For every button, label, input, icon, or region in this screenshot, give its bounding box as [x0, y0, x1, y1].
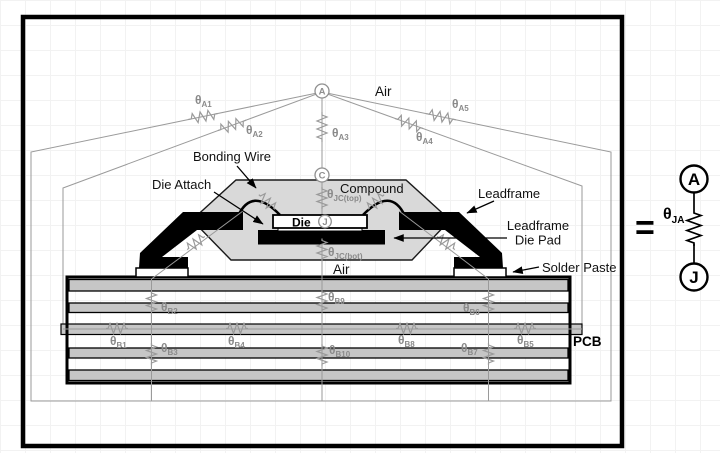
theta-a2: θA2: [246, 123, 263, 139]
resistor-a1: [187, 109, 218, 125]
theta-b10: θB10: [329, 343, 351, 359]
air-gap-label: Air: [333, 262, 350, 277]
resistor-a5: [425, 109, 456, 125]
leadframe-die-pad-label-2: Die Pad: [515, 233, 561, 248]
resistor-ja: [687, 210, 701, 246]
node-a-label: A: [319, 87, 326, 98]
pcb-label: PCB: [573, 334, 602, 349]
theta-b7: θB7: [461, 341, 478, 357]
equiv-node-j-label: J: [689, 268, 698, 287]
theta-b1: θB1: [110, 334, 127, 350]
resistor-a2: [216, 116, 248, 136]
die-attach-label: Die Attach: [152, 177, 211, 192]
theta-a5: θA5: [452, 97, 469, 113]
theta-b4: θB4: [228, 334, 245, 350]
pcb-layer: [69, 348, 568, 358]
pcb-layer: [69, 280, 568, 292]
theta-a1: θA1: [195, 93, 212, 109]
air-top-label: Air: [375, 84, 392, 99]
solder-paste-arrow: [513, 267, 539, 272]
theta-b8: θB8: [398, 333, 415, 349]
theta-ja: θJA: [663, 206, 684, 226]
solder-paste-label: Solder Paste: [542, 260, 616, 275]
bonding-wire-label: Bonding Wire: [193, 149, 271, 164]
solder-paste-left: [136, 268, 188, 277]
equiv-node-a-label: A: [688, 170, 700, 189]
equivalent-circuit: = A J θJA: [635, 166, 708, 291]
node-j-label: J: [322, 217, 327, 228]
equals-sign: =: [635, 209, 655, 247]
leadframe-die-pad: [258, 230, 385, 245]
node-c-label: C: [319, 171, 326, 182]
theta-b5: θB5: [517, 333, 534, 349]
thermal-network-diagram: A C J Air Air Bonding Wire Die Attach Co…: [0, 0, 720, 453]
theta-a4: θA4: [416, 130, 433, 146]
theta-b9: θB9: [328, 290, 345, 306]
leadframe-label: Leadframe: [478, 186, 540, 201]
theta-a3: θA3: [332, 126, 349, 142]
pcb-layer: [69, 370, 568, 381]
leadframe-die-pad-label-1: Leadframe: [507, 218, 569, 233]
die-label: Die: [292, 216, 311, 230]
theta-b3: θB3: [161, 341, 178, 357]
leadframe-arrow: [467, 201, 494, 213]
